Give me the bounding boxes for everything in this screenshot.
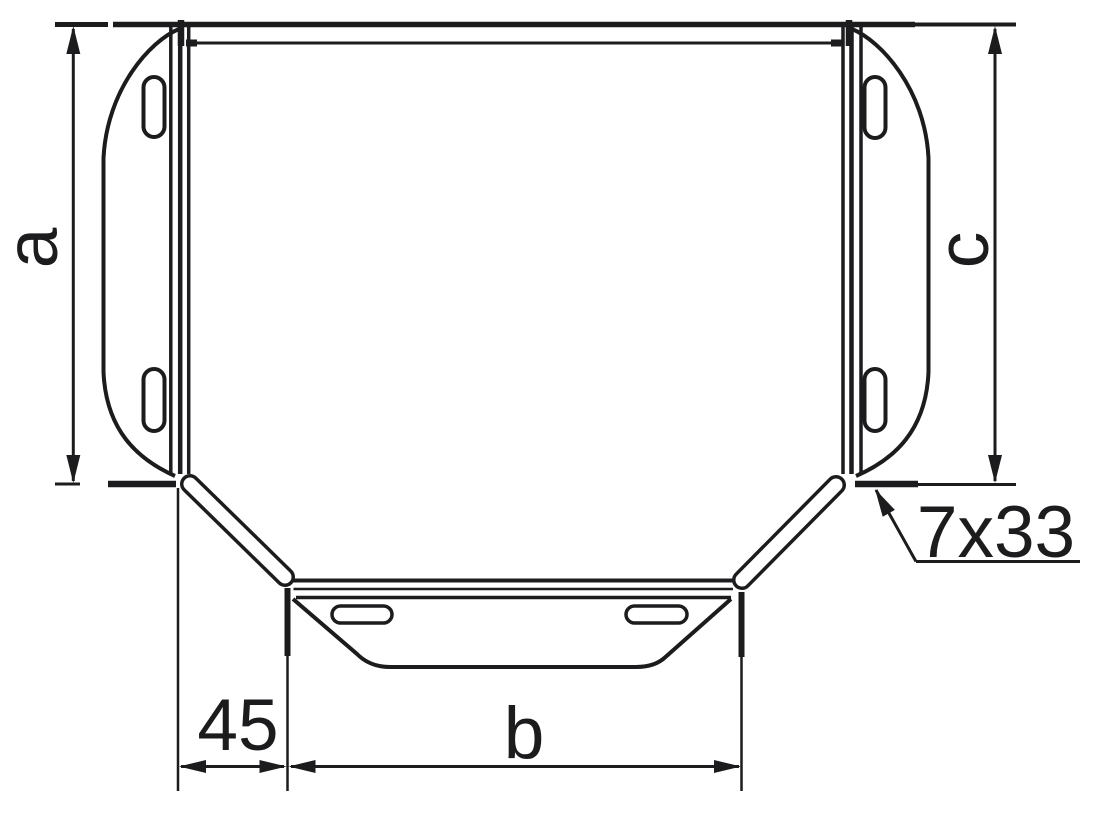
- dim-c-label: c: [923, 232, 1004, 269]
- dim-b-label: b: [504, 693, 545, 774]
- tee-piece-technical-drawing: a c 45 b 7x33: [0, 0, 1107, 825]
- slot-size-label: 7x33: [917, 492, 1075, 573]
- dim-a-label: a: [0, 227, 73, 268]
- dim-45-label: 45: [197, 685, 278, 766]
